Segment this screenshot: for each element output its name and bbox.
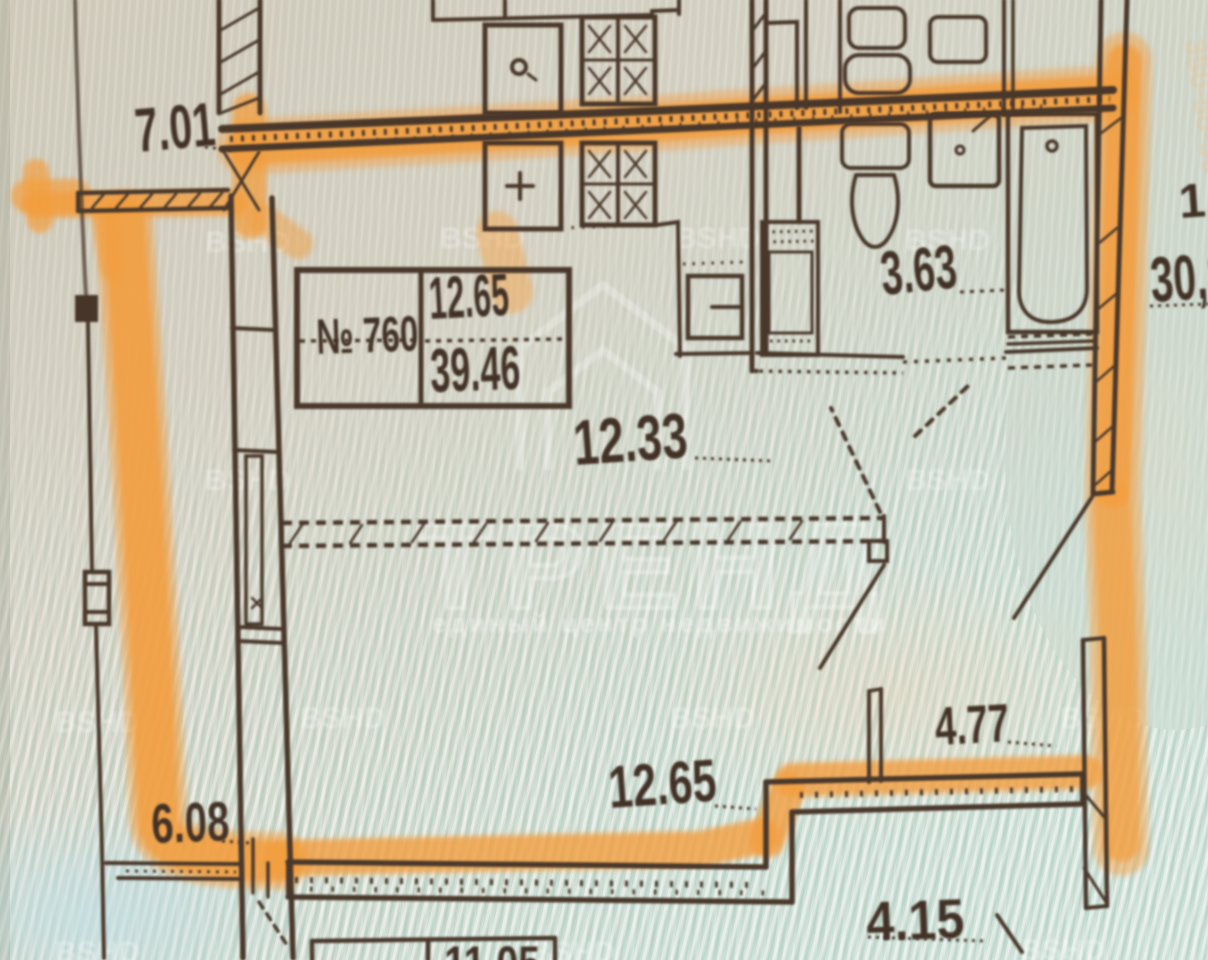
svg-text:12.33: 12.33 [571, 399, 690, 479]
svg-text:единый центр недвижимости: единый центр недвижимости [432, 608, 888, 638]
svg-text:BSHD: BSHD [905, 464, 990, 497]
svg-text:BSHD: BSHD [1020, 934, 1105, 960]
svg-text:BSHD: BSHD [55, 936, 140, 960]
svg-text:12.65: 12.65 [427, 261, 510, 332]
svg-text:BSHD: BSHD [670, 702, 755, 735]
svg-text:BSHD: BSHD [675, 222, 760, 255]
svg-text:BSHD: BSHD [300, 702, 385, 735]
svg-text:39.46: 39.46 [429, 334, 521, 406]
svg-text:1,: 1, [1177, 173, 1208, 229]
svg-text:№ 760: № 760 [315, 305, 419, 365]
svg-text:7.01: 7.01 [132, 90, 218, 166]
svg-text:6.08: 6.08 [150, 789, 230, 855]
svg-text:3.63: 3.63 [877, 232, 960, 309]
svg-text:11.05: 11.05 [444, 936, 540, 960]
svg-text:30,8: 30,8 [1148, 239, 1208, 316]
svg-text:12.65: 12.65 [606, 747, 718, 821]
svg-text:4.77: 4.77 [933, 693, 1010, 757]
svg-text:4.15: 4.15 [865, 887, 965, 953]
